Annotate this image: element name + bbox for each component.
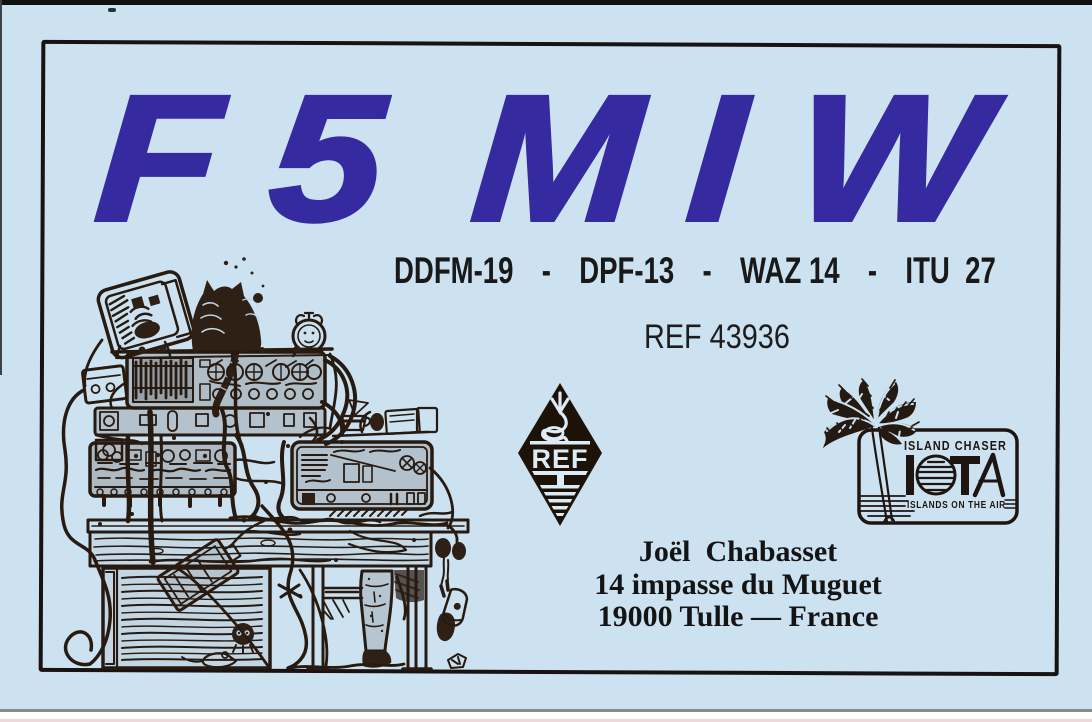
svg-text:ISLAND CHASER: ISLAND CHASER xyxy=(904,439,1007,453)
svg-text:ISLANDS ON THE AIR: ISLANDS ON THE AIR xyxy=(907,499,1006,511)
svg-text:REF: REF xyxy=(532,444,589,474)
